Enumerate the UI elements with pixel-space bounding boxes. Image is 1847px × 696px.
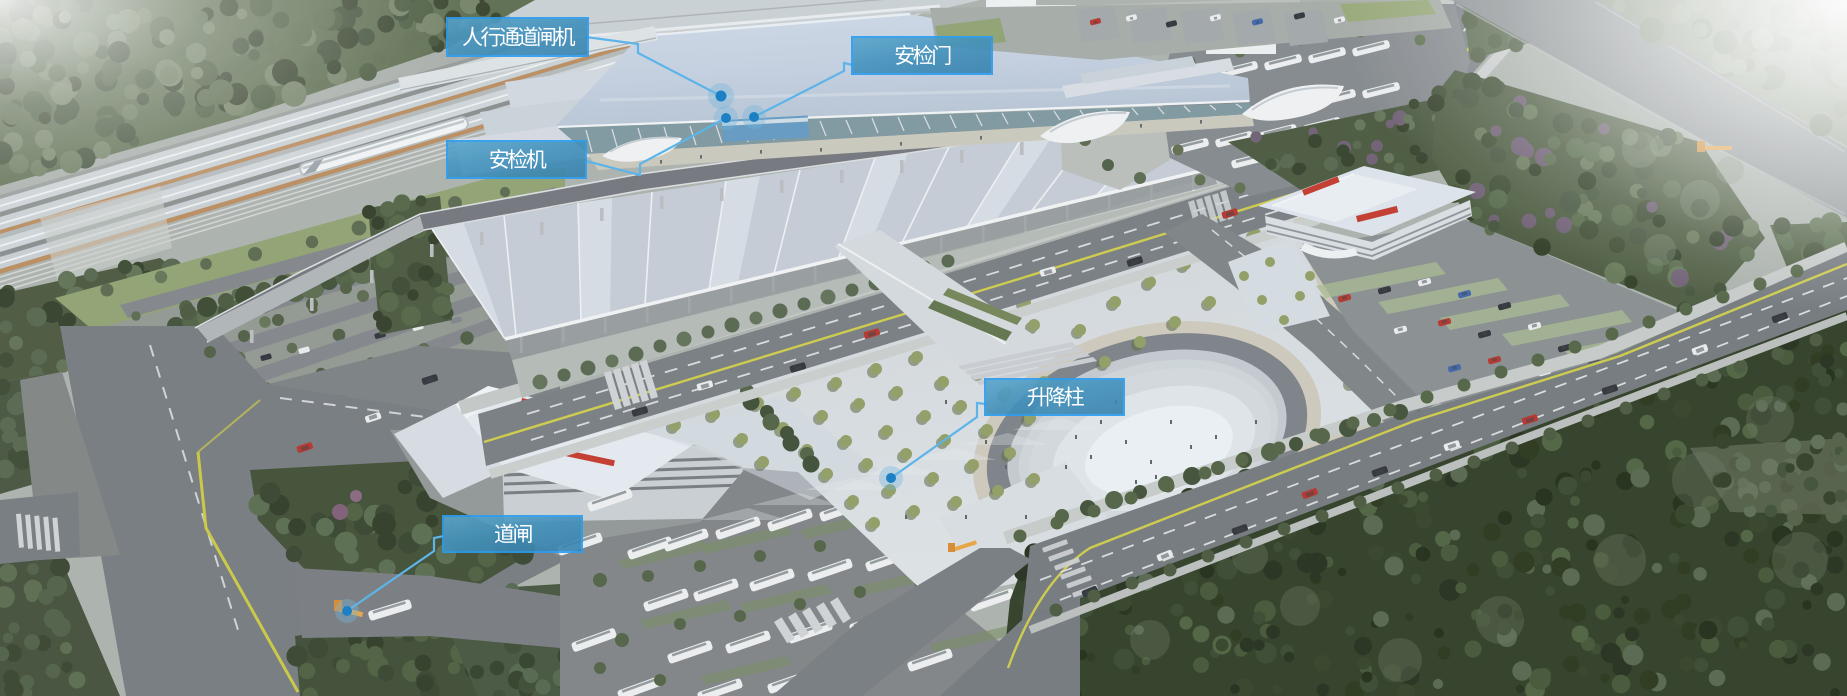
svg-text:道闸: 道闸 — [494, 524, 532, 547]
svg-text:安检门: 安检门 — [894, 45, 951, 68]
svg-text:升降柱: 升降柱 — [1027, 387, 1085, 410]
svg-text:人行通道闸机: 人行通道闸机 — [462, 27, 575, 50]
svg-text:安检机: 安检机 — [489, 149, 547, 172]
